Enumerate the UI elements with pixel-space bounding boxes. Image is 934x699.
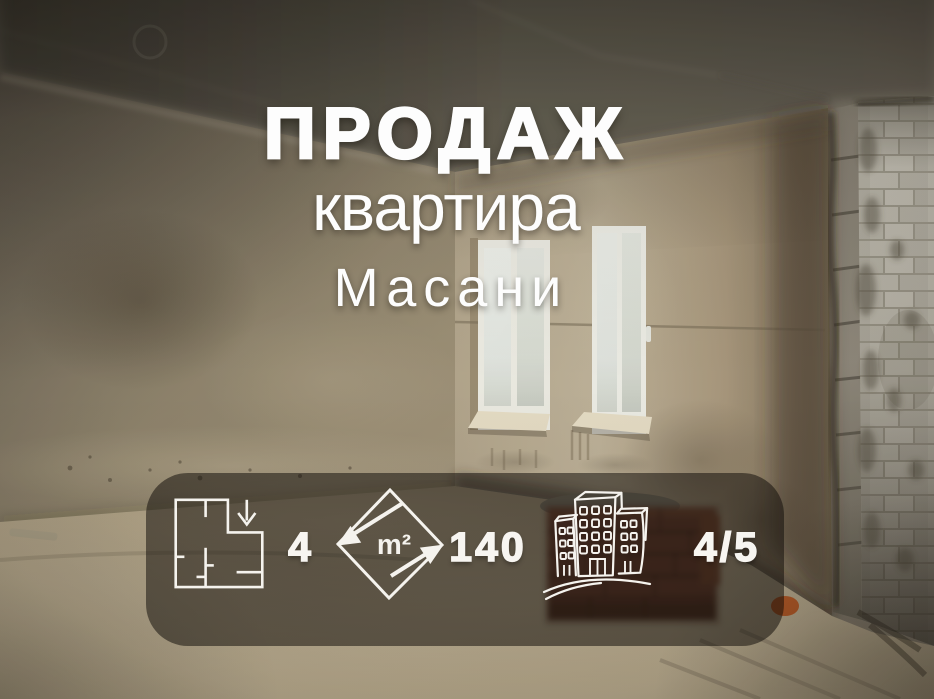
svg-text:m²: m²	[377, 529, 411, 560]
